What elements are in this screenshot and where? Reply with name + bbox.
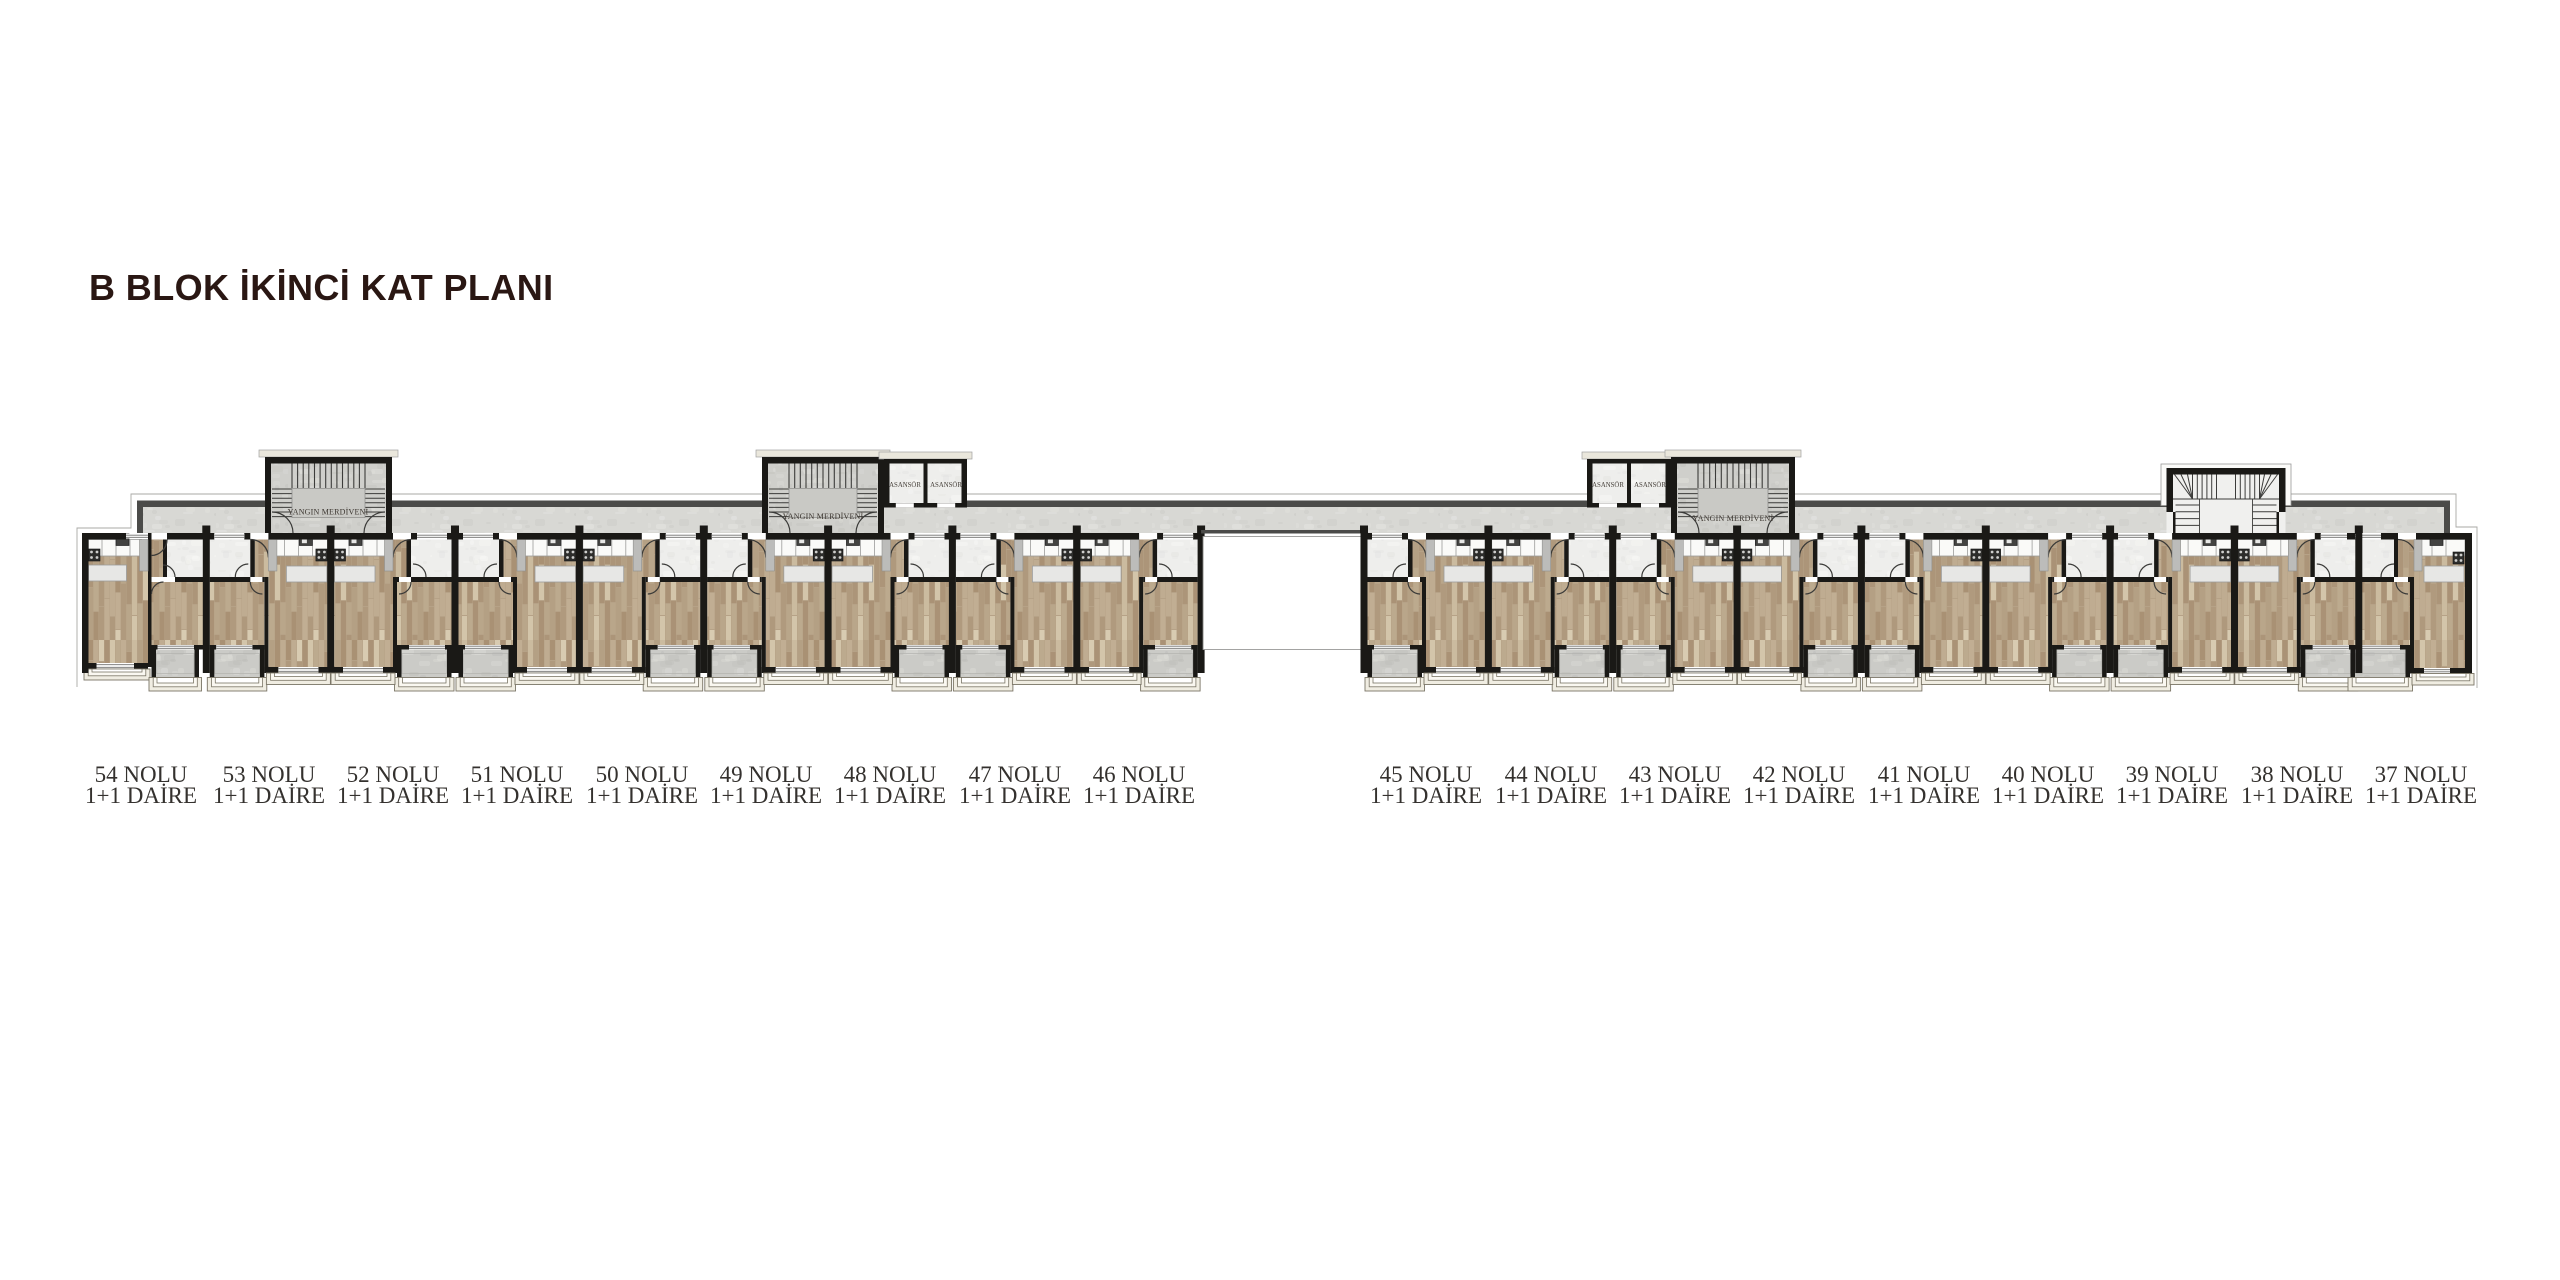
svg-text:1+1 DAİRE: 1+1 DAİRE — [710, 783, 822, 808]
svg-text:1+1 DAİRE: 1+1 DAİRE — [586, 783, 698, 808]
svg-text:1+1 DAİRE: 1+1 DAİRE — [337, 783, 449, 808]
svg-text:1+1 DAİRE: 1+1 DAİRE — [1370, 783, 1482, 808]
svg-text:1+1 DAİRE: 1+1 DAİRE — [1992, 783, 2104, 808]
svg-text:1+1 DAİRE: 1+1 DAİRE — [1743, 783, 1855, 808]
svg-text:1+1 DAİRE: 1+1 DAİRE — [85, 783, 197, 808]
svg-text:1+1 DAİRE: 1+1 DAİRE — [2116, 783, 2228, 808]
svg-text:1+1 DAİRE: 1+1 DAİRE — [1083, 783, 1195, 808]
svg-text:1+1 DAİRE: 1+1 DAİRE — [2241, 783, 2353, 808]
svg-text:ASANSÖR: ASANSÖR — [1634, 482, 1666, 489]
svg-text:YANGIN MERDİVENİ: YANGIN MERDİVENİ — [288, 508, 369, 517]
svg-text:1+1 DAİRE: 1+1 DAİRE — [461, 783, 573, 808]
svg-text:1+1 DAİRE: 1+1 DAİRE — [213, 783, 325, 808]
svg-text:1+1 DAİRE: 1+1 DAİRE — [1619, 783, 1731, 808]
svg-text:1+1 DAİRE: 1+1 DAİRE — [834, 783, 946, 808]
svg-text:ASANSÖR: ASANSÖR — [1592, 482, 1624, 489]
svg-text:1+1 DAİRE: 1+1 DAİRE — [2365, 783, 2477, 808]
svg-text:YANGIN MERDİVENİ: YANGIN MERDİVENİ — [783, 512, 864, 521]
svg-text:ASANSÖR: ASANSÖR — [889, 482, 921, 489]
svg-text:1+1 DAİRE: 1+1 DAİRE — [1868, 783, 1980, 808]
svg-text:1+1 DAİRE: 1+1 DAİRE — [959, 783, 1071, 808]
svg-text:B BLOK İKİNCİ KAT PLANI: B BLOK İKİNCİ KAT PLANI — [89, 267, 554, 308]
svg-text:YANGIN MERDİVENİ: YANGIN MERDİVENİ — [1693, 514, 1774, 523]
svg-text:ASANSÖR: ASANSÖR — [930, 482, 962, 489]
svg-text:1+1 DAİRE: 1+1 DAİRE — [1495, 783, 1607, 808]
